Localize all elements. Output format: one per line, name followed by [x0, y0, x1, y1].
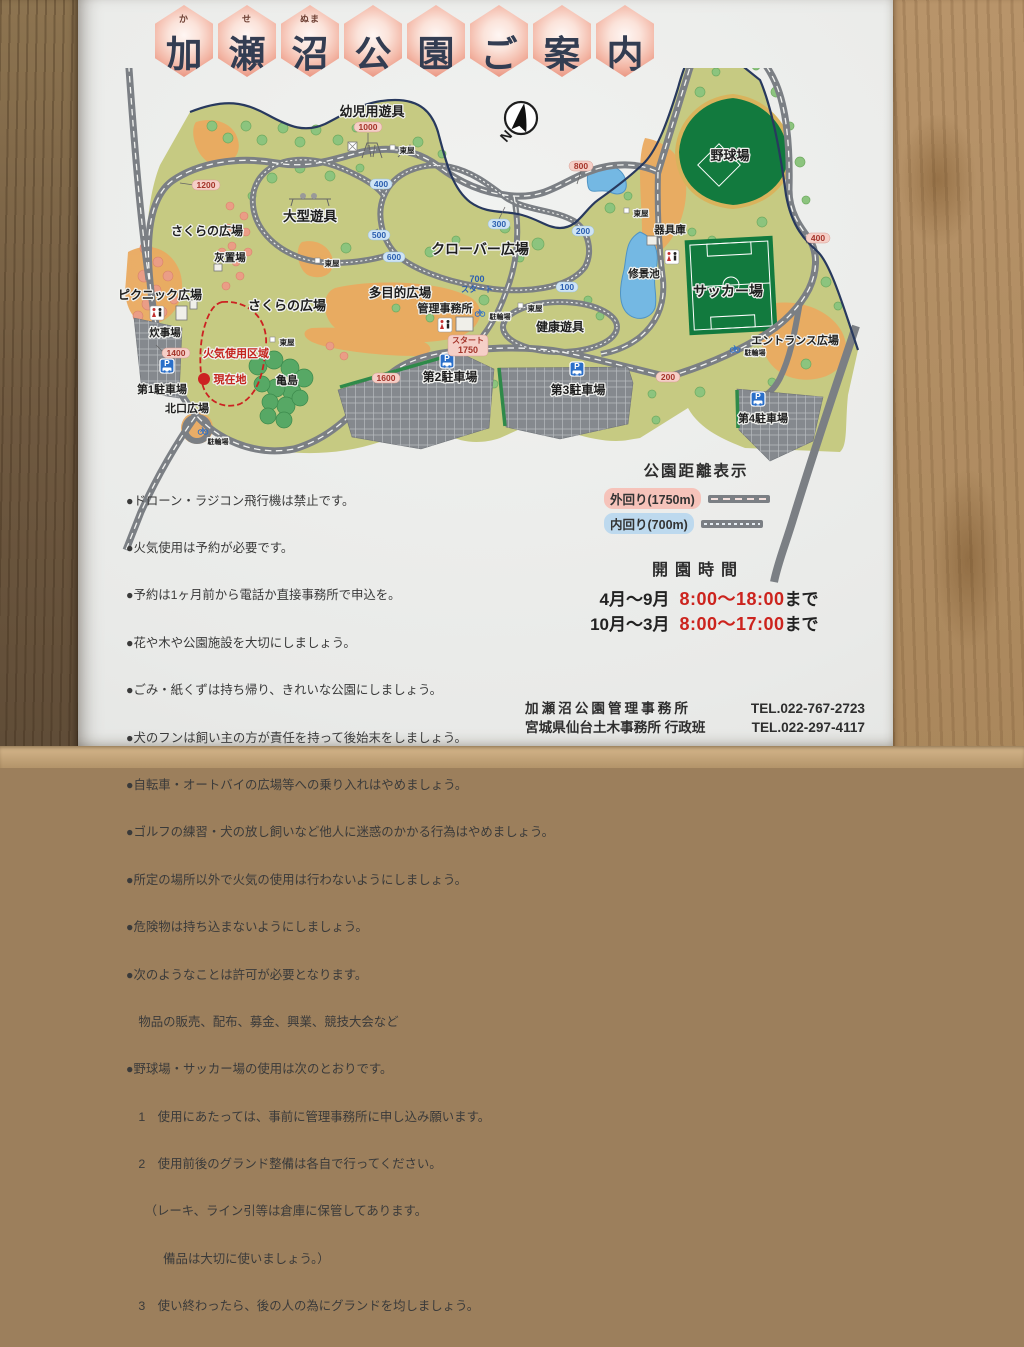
toilet-icon: [665, 250, 679, 264]
rule-item: ●火気使用は予約が必要です。: [126, 541, 612, 557]
map-label-parking2: 第2駐車場: [423, 369, 478, 384]
map-label-yakyujo: 野球場: [710, 148, 749, 163]
rule-item: ●自転車・オートバイの広場等への乗り入れはやめましょう。: [126, 778, 612, 794]
map-label-sakura-upper: さくらの広場: [171, 223, 243, 238]
park-sign-board: か加 せ瀬 ぬま沼 公 園 ご 案 内: [78, 0, 893, 746]
contact-office-name: 加瀬沼公園管理事務所: [525, 699, 691, 718]
office-building: [456, 317, 473, 331]
rule-item: 物品の販売、配布、募金、興業、競技大会など: [126, 1015, 612, 1031]
title-hexagon: せ瀬: [218, 5, 276, 77]
hours-time: 8:00〜18:00: [679, 589, 784, 609]
start-label: スタート: [452, 335, 484, 345]
rule-item: 備品は大切に使いましょう。）: [126, 1252, 612, 1268]
title-hexagon: 案: [533, 5, 591, 77]
svg-text:500: 500: [372, 230, 386, 240]
map-label-ogata-yugu: 大型遊具: [283, 208, 337, 224]
title-hexagon: 公: [344, 5, 402, 77]
map-label-picnic: ピクニック広場: [118, 287, 202, 302]
svg-text:P: P: [164, 358, 170, 368]
rule-item: ●予約は1ヶ月前から電話か直接事務所で申込を。: [126, 588, 612, 604]
map-label-kamejima: 亀島: [276, 373, 298, 387]
parking-icon: P: [160, 358, 174, 373]
legend-inner-label: 内回り(700m): [604, 513, 694, 534]
contact-row: 加瀬沼公園管理事務所 TEL.022-767-2723: [525, 699, 865, 718]
churinjo-label: 駐輪場: [490, 312, 511, 321]
rule-item: ●ゴルフの練習・犬の放し飼いなど他人に迷惑のかかる行為はやめましょう。: [126, 825, 612, 841]
inner-course-line: [701, 520, 763, 528]
map-label-entrance: エントランス広場: [751, 333, 839, 347]
rule-item: ●危険物は持ち込まないようにしましょう。: [126, 920, 612, 936]
map-label-parking3: 第3駐車場: [551, 382, 606, 397]
legend-title: 公園距離表示: [596, 459, 796, 481]
rule-item: ●次のようなことは許可が必要となります。: [126, 968, 612, 984]
legend-inner-row: 内回り(700m): [604, 513, 796, 534]
storage-building: [647, 236, 657, 245]
svg-text:1200: 1200: [197, 180, 216, 190]
map-label-haiokiba: 灰置場: [214, 251, 246, 264]
ash-building: [214, 264, 222, 271]
contact-phone: TEL.022-767-2723: [751, 699, 865, 718]
contact-info: 加瀬沼公園管理事務所 TEL.022-767-2723 宮城県仙台土木事務所 行…: [525, 699, 865, 737]
rules-list: ●ドローン・ラジコン飛行機は禁止です。 ●火気使用は予約が必要です。 ●予約は1…: [126, 462, 612, 1347]
map-label-yoji-yugu: 幼児用遊具: [339, 104, 404, 119]
hours-time: 8:00〜17:00: [679, 614, 784, 634]
hours-period: 10月〜3月: [577, 612, 669, 637]
hours-title: 開園時間: [548, 556, 848, 580]
start-distance: 1750: [458, 345, 478, 355]
title-hexagon: か加: [155, 5, 213, 77]
svg-text:200: 200: [661, 372, 675, 382]
map-label-parking4: 第4駐車場: [738, 411, 788, 425]
map-label-kanri: 管理事務所: [418, 301, 473, 315]
inner-start-label: スタート: [461, 284, 493, 294]
map-label-suijiba: 炊事場: [149, 326, 181, 339]
rule-item: ●所定の場所以外で火気の使用は行わないようにしましょう。: [126, 873, 612, 889]
map-label-kenko: 健康遊具: [536, 319, 584, 334]
rule-item: ●ごみ・紙くずは持ち帰り、きれいな公園にしましょう。: [126, 683, 612, 699]
legend-outer-row: 外回り(1750m): [604, 488, 796, 509]
svg-text:P: P: [574, 361, 580, 371]
map-label-soccer: サッカー場: [693, 283, 763, 299]
rule-item: ●花や木や公園施設を大切にしましょう。: [126, 636, 612, 652]
current-location-dot: [198, 373, 210, 385]
map-label-parking1: 第1駐車場: [137, 382, 187, 396]
azumaya-label: 東屋: [400, 145, 415, 155]
svg-text:1400: 1400: [167, 348, 186, 358]
rule-item: ●野球場・サッカー場の使用は次のとおりです。: [126, 1062, 612, 1078]
svg-text:400: 400: [374, 179, 388, 189]
map-label-current-location: 現在地: [214, 372, 247, 386]
map-label-shukeiike: 修景池: [627, 267, 660, 280]
contact-phone: TEL.022-297-4117: [752, 718, 865, 737]
map-label-clover: クローバー広場: [431, 241, 529, 257]
distance-legend: 公園距離表示 外回り(1750m) 内回り(700m): [596, 459, 796, 538]
azumaya-label: 東屋: [325, 258, 340, 268]
rule-item: ●ドローン・ラジコン飛行機は禁止です。: [126, 494, 612, 510]
legend-outer-label: 外回り(1750m): [604, 488, 701, 509]
svg-text:300: 300: [492, 219, 506, 229]
svg-text:600: 600: [387, 252, 401, 262]
map-label-fire-zone: 火気使用区域: [203, 346, 269, 360]
svg-text:P: P: [755, 391, 761, 401]
churinjo-label: 駐輪場: [208, 437, 229, 446]
sign-title: か加 せ瀬 ぬま沼 公 園 ご 案 内: [155, 5, 654, 77]
compass-icon: N: [497, 102, 537, 145]
hours-suffix: まで: [785, 615, 819, 634]
title-hexagon: ぬま沼: [281, 5, 339, 77]
svg-text:1600: 1600: [377, 373, 396, 383]
rule-item: （レーキ、ライン引等は倉庫に保管してあります。: [126, 1204, 612, 1220]
map-label-kiguko: 器具庫: [653, 223, 686, 236]
azumaya-label: 東屋: [528, 303, 543, 313]
svg-text:1000: 1000: [359, 122, 378, 132]
svg-text:400: 400: [811, 233, 825, 243]
title-hexagon: 園: [407, 5, 465, 77]
svg-text:100: 100: [560, 282, 574, 292]
inner-start-distance: 700: [469, 274, 484, 284]
svg-text:200: 200: [576, 226, 590, 236]
hours-row: 4月〜9月8:00〜18:00まで: [548, 587, 848, 612]
wood-post-right: [893, 0, 1024, 768]
churinjo-label: 駐輪場: [745, 348, 766, 357]
cooking-building: [176, 306, 187, 320]
map-label-tamokuteki: 多目的広場: [369, 285, 432, 300]
hours-row: 10月〜3月8:00〜17:00まで: [548, 612, 848, 637]
hours-suffix: まで: [785, 590, 819, 609]
parking-icon: P: [751, 391, 765, 406]
rule-item: 1 使用にあたっては、事前に管理事務所に申し込み願います。: [126, 1110, 612, 1126]
outer-course-line: [708, 495, 770, 503]
opening-hours: 開園時間 4月〜9月8:00〜18:00まで 10月〜3月8:00〜17:00ま…: [548, 556, 848, 637]
contact-office-name: 宮城県仙台土木事務所 行政班: [525, 718, 706, 737]
map-label-sakura-lower: さくらの広場: [248, 298, 326, 313]
parking-icon: P: [570, 361, 584, 376]
azumaya-label: 東屋: [634, 208, 649, 218]
toilet-icon: [150, 306, 164, 320]
title-hexagon: ご: [470, 5, 528, 77]
contact-row: 宮城県仙台土木事務所 行政班 TEL.022-297-4117: [525, 718, 865, 737]
toilet-icon: [438, 318, 452, 332]
rule-item: 3 使い終わったら、後の人の為にグランドを均しましょう。: [126, 1299, 612, 1315]
azumaya-label: 東屋: [280, 337, 295, 347]
hours-period: 4月〜9月: [577, 587, 669, 612]
title-hexagon: 内: [596, 5, 654, 77]
svg-text:800: 800: [574, 161, 588, 171]
rule-item: 2 使用前後のグランド整備は各自で行ってください。: [126, 1157, 612, 1173]
wood-post-left: [0, 0, 78, 768]
map-label-kitaguchi: 北口広場: [165, 401, 209, 415]
